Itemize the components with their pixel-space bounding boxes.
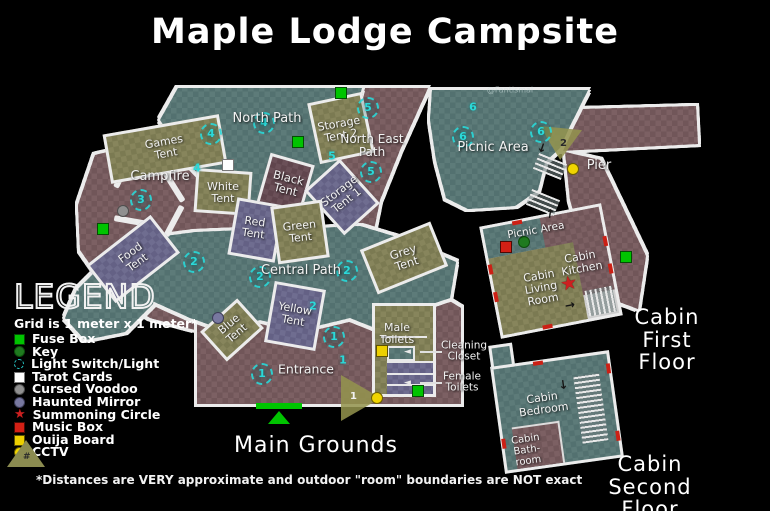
- legend: LEGEND Grid is 1 meter x 1 meter* Fuse B…: [14, 280, 224, 459]
- callout-arrow-icon: ◄: [404, 348, 411, 357]
- cabin-living-room-label: Cabin Living Room: [522, 268, 560, 309]
- cursed-voodoo-icon: [14, 384, 25, 395]
- entrance-label: Entrance: [278, 362, 334, 376]
- door-marker: [608, 263, 614, 274]
- cctv-marker: [371, 392, 383, 404]
- white-tent-label: White Tent: [207, 181, 239, 205]
- north-east-path-label: North East Path: [340, 133, 403, 159]
- stall-divider: [387, 373, 433, 375]
- main-entrance-door: [256, 403, 302, 409]
- door-marker: [501, 438, 506, 448]
- central-path-label: Central Path: [261, 264, 341, 278]
- light-marker: 1: [323, 326, 345, 348]
- cabin-stairs-down: [584, 286, 616, 317]
- ouija-board-marker: [376, 345, 388, 357]
- door-marker: [542, 324, 553, 330]
- main-grounds-label: Main Grounds: [234, 434, 398, 458]
- maple-lodge-campsite-map: → ↓ ↓ ↑ 2 1 ★ 4 4: [0, 0, 770, 511]
- camera-number: 2: [560, 138, 567, 149]
- door-marker: [615, 431, 620, 441]
- callout-line: [420, 382, 442, 384]
- watermark: @Fantismal: [487, 87, 533, 96]
- door-marker: [606, 363, 611, 373]
- red-tent-label: Red Tent: [241, 215, 267, 242]
- callout-line: [420, 351, 442, 353]
- light-marker: 5: [360, 161, 382, 183]
- main-entrance-arrow: [268, 411, 290, 424]
- cabin-second-floor-label: Cabin Second Floor: [590, 453, 710, 511]
- camera-hash-symbol: #: [23, 452, 31, 462]
- summoning-circle-icon: ★: [14, 408, 26, 421]
- light-switch-marker: 4: [193, 162, 201, 175]
- fuse-box-marker: [620, 251, 632, 263]
- light-switch-marker: 5: [328, 150, 336, 163]
- north-path-label: North Path: [232, 112, 301, 126]
- campfire-log: [163, 205, 184, 238]
- pier-label: Pier: [587, 159, 612, 173]
- cctv-marker: [567, 163, 579, 175]
- legend-subtitle: Grid is 1 meter x 1 meter*: [14, 316, 224, 331]
- male-toilets-label: Male Toilets: [380, 322, 415, 346]
- light-switch-marker: 1: [339, 354, 347, 367]
- key-icon: [14, 346, 25, 357]
- door-marker: [533, 360, 543, 365]
- light-marker: 3: [130, 189, 152, 211]
- light-marker: 6: [530, 121, 552, 143]
- light-switch-marker: 6: [469, 101, 477, 114]
- door-marker: [602, 236, 608, 247]
- music-box-icon: [14, 422, 25, 433]
- light-marker: 5: [357, 97, 379, 119]
- cabin-first-floor-label: Cabin First Floor: [616, 306, 719, 374]
- callout-arrow-icon: ◄: [404, 379, 411, 388]
- green-tent-label: Green Tent: [282, 218, 318, 245]
- page-title: Maple Lodge Campsite: [0, 14, 770, 52]
- stairs-arrow-icon: ↑: [544, 206, 556, 221]
- fuse-box-marker: [97, 223, 109, 235]
- light-marker: 1: [251, 363, 273, 385]
- fuse-box-icon: [14, 334, 25, 345]
- legend-heading: LEGEND: [14, 280, 224, 313]
- fuse-box-marker: [335, 87, 347, 99]
- cabin-closet-nook: [488, 343, 515, 370]
- fuse-box-marker: [412, 385, 424, 397]
- tarot-cards-icon: [14, 372, 25, 383]
- female-toilets-callout: Female Toilets: [443, 372, 481, 395]
- fuse-box-marker: [292, 136, 304, 148]
- cabin-stairs-up: [573, 373, 608, 444]
- picnic-area-label: Picnic Area: [457, 141, 528, 155]
- tarot-cards-marker: [222, 159, 234, 171]
- camera-number: 1: [350, 391, 357, 402]
- music-box-marker: [500, 241, 512, 253]
- light-switch-icon: [14, 359, 24, 369]
- light-marker: 4: [200, 123, 222, 145]
- cabin-bathroom-label: Cabin Bath- room: [511, 433, 544, 469]
- campfire-label: Campfire: [130, 170, 189, 184]
- footnote: *Distances are VERY approximate and outd…: [36, 474, 582, 487]
- cursed-voodoo-marker: [117, 205, 129, 217]
- light-marker: 2: [183, 251, 205, 273]
- cleaning-closet-callout: Cleaning Closet: [441, 341, 487, 364]
